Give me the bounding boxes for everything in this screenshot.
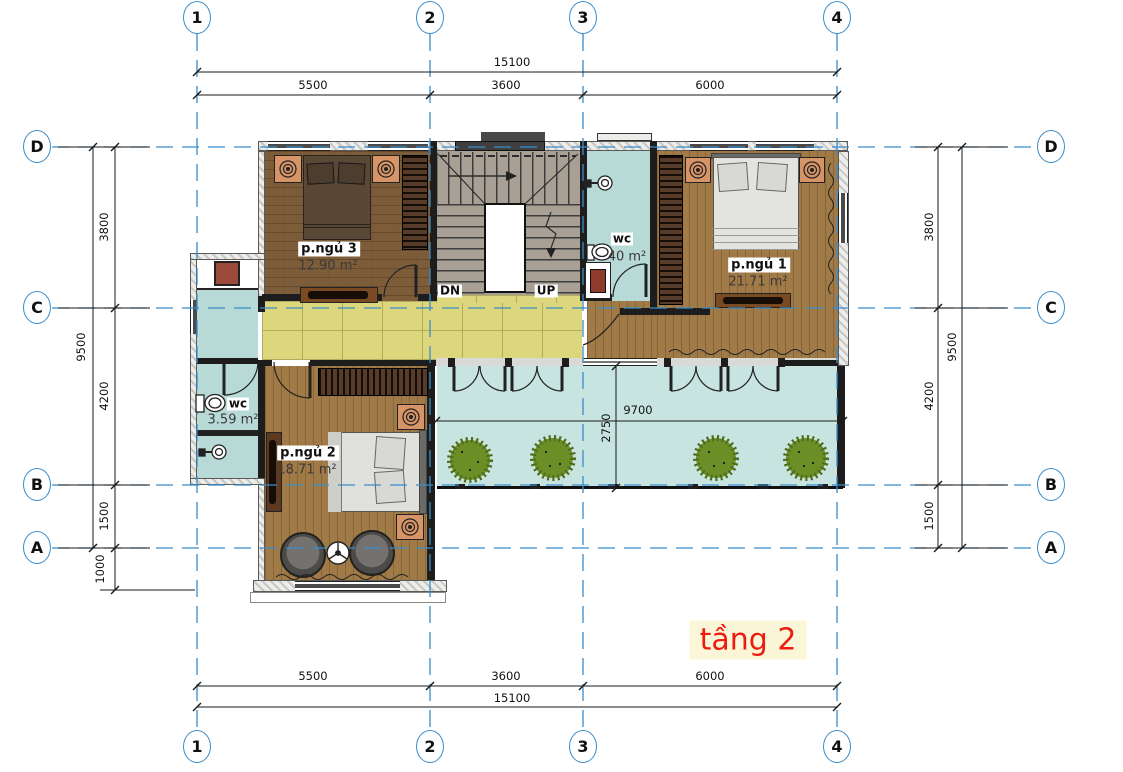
door-jamb-4 bbox=[664, 358, 671, 367]
terrace-rail bbox=[437, 486, 843, 489]
bedroom3-pillow-2 bbox=[337, 162, 365, 184]
grid-bubble-col4-top: 4 bbox=[823, 1, 851, 34]
dim-right-seg2: 4200 bbox=[922, 381, 936, 410]
dim-bottom-seg1: 5500 bbox=[298, 669, 327, 683]
annex-left-wall bbox=[190, 253, 197, 485]
annex-window bbox=[190, 300, 197, 334]
bedroom1-south-wall bbox=[785, 360, 838, 366]
bedroom1-blanket-lines bbox=[713, 228, 799, 250]
bedroom1-entry-bar bbox=[620, 308, 710, 315]
bedroom1-nightstand-right bbox=[799, 157, 825, 183]
corridor-annex-jamb bbox=[258, 296, 265, 312]
bedroom1-name: p.ngủ 1 bbox=[728, 258, 790, 273]
bedroom3-blanket-line bbox=[303, 224, 371, 230]
stairs-up-label: UP bbox=[535, 285, 558, 298]
terrace-right-wall bbox=[837, 366, 845, 488]
grid-bubble-col1-bottom: 1 bbox=[183, 730, 211, 763]
dim-top-total: 15100 bbox=[494, 55, 531, 69]
rail-post-5 bbox=[758, 484, 768, 489]
dim-left-below: 1000 bbox=[93, 554, 107, 583]
wc-main-area: 40 m² bbox=[608, 250, 647, 265]
stair-ledge bbox=[481, 132, 545, 141]
terrace-window-mid bbox=[583, 358, 657, 366]
dim-left-total: 9500 bbox=[74, 332, 88, 361]
grid-bubble-rowC-right: C bbox=[1037, 291, 1065, 324]
bedroom1-side-window bbox=[838, 193, 848, 243]
bedroom1-pillow-1 bbox=[717, 162, 749, 192]
bedroom2-window bbox=[295, 581, 400, 591]
dim-left-seg3: 1500 bbox=[97, 501, 111, 530]
right-exterior-wall bbox=[838, 151, 849, 366]
bedroom2-name: p.ngủ 2 bbox=[277, 446, 339, 461]
rail-post-3 bbox=[608, 484, 618, 489]
shower-base bbox=[590, 269, 606, 293]
bedroom2-wardrobe bbox=[318, 368, 428, 396]
door-jamb-5 bbox=[721, 358, 728, 367]
corridor-floor bbox=[262, 301, 582, 360]
bedroom3-window-2 bbox=[368, 141, 428, 151]
bedroom1-window-2 bbox=[756, 141, 814, 151]
annex-bottom-wall bbox=[190, 478, 265, 485]
door-jamb-6 bbox=[778, 358, 785, 367]
grid-bubble-col3-top: 3 bbox=[569, 1, 597, 34]
door-jamb-3 bbox=[562, 358, 569, 367]
bedroom3-window-1 bbox=[268, 141, 330, 151]
bedroom2-pillow-1 bbox=[374, 436, 406, 470]
stair-window bbox=[455, 141, 545, 151]
bedroom3-pillow-1 bbox=[306, 162, 334, 184]
rail-post-4 bbox=[688, 484, 698, 489]
washer bbox=[214, 261, 240, 286]
dim-bottom-seg2: 3600 bbox=[491, 669, 520, 683]
bedroom1-area: 21.71 m² bbox=[728, 275, 787, 290]
bedroom2-area: 18.71 m² bbox=[277, 463, 336, 478]
bedroom3-area: 12.90 m² bbox=[298, 259, 357, 274]
bedroom2-headboard bbox=[419, 430, 427, 514]
bedroom2-east-wall bbox=[427, 366, 435, 592]
grid-bubble-rowD-left: D bbox=[23, 130, 51, 163]
left-exterior-wall-upper bbox=[258, 151, 265, 305]
wc-main-name: wc bbox=[611, 233, 633, 246]
dim-left-seg1: 3800 bbox=[97, 212, 111, 241]
annex-lobby-floor bbox=[197, 290, 258, 360]
wall-wc-bedroom1 bbox=[650, 141, 657, 308]
grid-bubble-rowC-left: C bbox=[23, 291, 51, 324]
dim-right-seg3: 1500 bbox=[922, 501, 936, 530]
door-jamb-2 bbox=[505, 358, 512, 367]
annex-top-wall bbox=[190, 253, 265, 260]
grid-bubble-col3-bottom: 3 bbox=[569, 730, 597, 763]
annex-sink-floor bbox=[197, 436, 258, 478]
left-exterior-wall-lower bbox=[258, 478, 265, 592]
dim-top-seg3: 6000 bbox=[695, 78, 724, 92]
bedroom3-south-wall-b bbox=[418, 294, 430, 301]
grid-bubble-rowB-left: B bbox=[23, 468, 51, 501]
bedroom2-nightstand-bottom bbox=[396, 514, 424, 540]
bedroom3-nightstand-right bbox=[372, 155, 400, 183]
bedroom2-armchair-2 bbox=[349, 530, 395, 576]
bedroom1-wardrobe bbox=[659, 155, 683, 305]
terrace-floor bbox=[437, 366, 837, 488]
dim-top-seg1: 5500 bbox=[298, 78, 327, 92]
stairs-down-label: DN bbox=[438, 285, 462, 298]
rail-post-6 bbox=[818, 484, 828, 489]
dim-bottom-seg3: 6000 bbox=[695, 669, 724, 683]
floor-title: tầng 2 bbox=[690, 621, 807, 660]
door-jamb-1 bbox=[448, 358, 455, 367]
dim-right-total: 9500 bbox=[945, 332, 959, 361]
dim-terrace-width: 9700 bbox=[623, 403, 652, 417]
bedroom3-name: p.ngủ 3 bbox=[298, 242, 360, 257]
rail-post-2 bbox=[530, 484, 540, 489]
bedroom2-armchair-1 bbox=[280, 532, 326, 578]
dim-top-seg2: 3600 bbox=[491, 78, 520, 92]
grid-bubble-col2-bottom: 2 bbox=[416, 730, 444, 763]
bedroom2-pillow-2 bbox=[374, 470, 406, 504]
grid-bubble-rowA-right: A bbox=[1037, 531, 1065, 564]
stair-top-landing bbox=[436, 152, 580, 204]
bedroom3-wardrobe bbox=[402, 155, 428, 250]
wc-small-name: wc bbox=[227, 398, 249, 411]
dim-terrace-depth: 2750 bbox=[599, 413, 613, 442]
bedroom1-tv bbox=[723, 297, 783, 304]
grid-bubble-col2-top: 2 bbox=[416, 1, 444, 34]
wc-ledge bbox=[597, 133, 652, 141]
annex-bedroom2-wall bbox=[258, 364, 265, 478]
bedroom2-tv bbox=[269, 440, 276, 504]
grid-bubble-col1-top: 1 bbox=[183, 1, 211, 34]
grid-bubble-col4-bottom: 4 bbox=[823, 730, 851, 763]
bedroom1-window-1 bbox=[690, 141, 748, 151]
annex-wc-wall bbox=[197, 358, 258, 364]
grid-bubble-rowB-right: B bbox=[1037, 468, 1065, 501]
bedroom2-north-wall bbox=[310, 360, 436, 366]
grid-bubble-rowA-left: A bbox=[23, 531, 51, 564]
annex-counter bbox=[197, 430, 258, 436]
bedroom2-nightstand-top bbox=[397, 404, 425, 430]
stair-void bbox=[484, 203, 526, 293]
bedroom1-pillow-2 bbox=[756, 162, 788, 192]
wc-small-area: 3.59 m² bbox=[208, 413, 259, 428]
dim-right-seg1: 3800 bbox=[922, 212, 936, 241]
dim-bottom-total: 15100 bbox=[494, 691, 531, 705]
bedroom1-nightstand-left bbox=[685, 157, 711, 183]
bedroom3-tv bbox=[308, 291, 368, 299]
bedroom2-south-ledge bbox=[250, 592, 446, 603]
dim-left-seg2: 4200 bbox=[97, 381, 111, 410]
rail-post-1 bbox=[455, 484, 465, 489]
bedroom3-nightstand-left bbox=[274, 155, 302, 183]
grid-bubble-rowD-right: D bbox=[1037, 130, 1065, 163]
wall-bedroom3-stairs bbox=[430, 141, 437, 301]
floor-plan-tang-2: 1 2 3 4 1 2 3 4 D C B A D C B A 15100 55… bbox=[0, 0, 1123, 772]
